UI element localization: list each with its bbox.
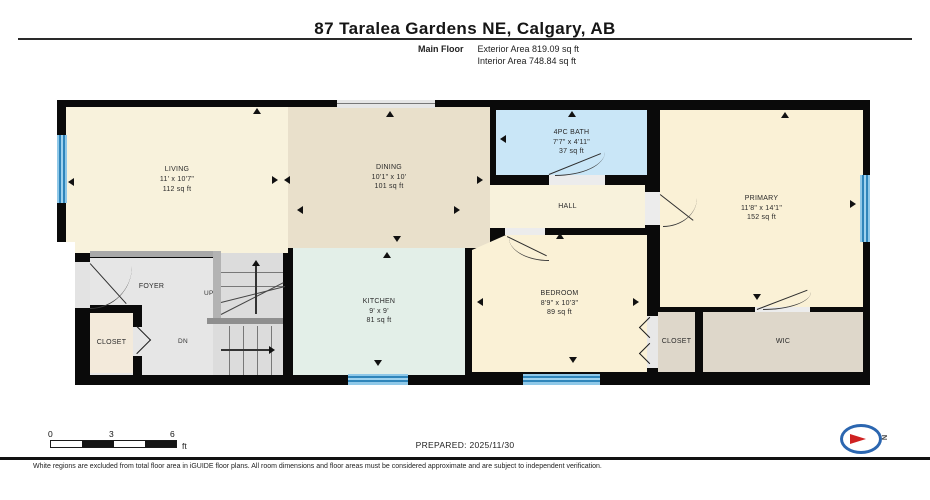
dimension-arrow-icon (633, 298, 639, 306)
stair-landing-divider (207, 318, 283, 324)
window (523, 374, 600, 385)
dimension-arrow-icon (253, 108, 261, 114)
stair-tread (221, 272, 283, 273)
stair-tread (229, 326, 230, 375)
wall-segment (133, 356, 142, 375)
page-title: 87 Taralea Gardens NE, Calgary, AB (0, 19, 930, 39)
title-divider (18, 38, 912, 40)
dimension-arrow-icon (500, 135, 506, 143)
dimension-arrow-icon (383, 252, 391, 258)
room-hall: HALL (490, 185, 645, 228)
door-opening (75, 262, 90, 308)
room-living: LIVING 11' x 10'7" 112 sq ft (66, 107, 288, 253)
patio-door (337, 100, 435, 108)
dimension-arrow-icon (781, 112, 789, 118)
dimension-arrow-icon (284, 176, 290, 184)
room-foyer-label: FOYER (139, 282, 164, 292)
dimension-arrow-icon (393, 236, 401, 242)
floor-label: Main Floor (418, 43, 464, 67)
stairs-up-arrow (255, 266, 257, 314)
scale-ticks: 0 3 6 (50, 429, 200, 439)
scale-tick: 6 (170, 429, 175, 439)
prepared-date: PREPARED: 2025/11/30 (0, 440, 930, 450)
stairs-up-arrowhead-icon (252, 260, 260, 266)
room-wic: WIC (703, 312, 863, 372)
room-bedroom-closet-label: CLOSET (662, 337, 692, 347)
wall-segment (133, 305, 142, 327)
dimension-arrow-icon (386, 111, 394, 117)
disclaimer-text: White regions are excluded from total fl… (33, 463, 913, 470)
stairs-down-label: DN (178, 338, 188, 345)
dimension-arrow-icon (454, 206, 460, 214)
compass-icon: N (840, 424, 886, 454)
room-dining: DINING 10'1" x 10' 101 sq ft (288, 107, 490, 248)
room-living-label: LIVING 11' x 10'7" 112 sq ft (160, 165, 194, 194)
dimension-arrow-icon (556, 233, 564, 239)
dimension-arrow-icon (850, 200, 856, 208)
door-opening (505, 228, 545, 235)
door-opening (549, 175, 605, 185)
north-arrow-icon (850, 434, 866, 444)
dimension-arrow-icon (568, 111, 576, 117)
room-kitchen: KITCHEN 9' x 9' 81 sq ft (293, 248, 465, 375)
area-summary: Exterior Area 819.09 sq ft Interior Area… (478, 43, 580, 67)
dimension-arrow-icon (68, 178, 74, 186)
floorplan-page: 87 Taralea Gardens NE, Calgary, AB Main … (0, 0, 930, 500)
room-bedroom-closet: CLOSET (658, 312, 695, 372)
room-dining-label: DINING 10'1" x 10' 101 sq ft (372, 163, 407, 192)
window (57, 135, 67, 203)
room-hall-label: HALL (558, 202, 577, 212)
dimension-arrow-icon (569, 357, 577, 363)
compass-north-label: N (880, 435, 889, 440)
stairs-down-arrowhead-icon (269, 346, 275, 354)
dimension-arrow-icon (297, 206, 303, 214)
room-bedroom: BEDROOM 8'9" x 10'3" 89 sq ft (472, 235, 647, 372)
exterior-area: Exterior Area 819.09 sq ft (478, 43, 580, 55)
room-wic-label: WIC (776, 337, 790, 347)
stair-tread (257, 326, 258, 375)
stair-tread (243, 326, 244, 375)
stairs-down-arrow (221, 349, 271, 351)
dimension-arrow-icon (753, 294, 761, 300)
dimension-arrow-icon (477, 176, 483, 184)
window (860, 175, 870, 242)
stairs-up-label: UP (204, 290, 214, 297)
scale-tick: 3 (109, 429, 114, 439)
stair-post (213, 251, 221, 321)
footer-divider (0, 457, 930, 460)
dimension-arrow-icon (477, 298, 483, 306)
room-bedroom-label: BEDROOM 8'9" x 10'3" 89 sq ft (541, 289, 579, 318)
exterior-cutout (57, 242, 75, 385)
dimension-arrow-icon (272, 176, 278, 184)
door-opening (645, 192, 660, 225)
room-kitchen-label: KITCHEN 9' x 9' 81 sq ft (363, 297, 395, 326)
foyer-railing (90, 251, 218, 257)
dimension-arrow-icon (374, 360, 382, 366)
interior-area: Interior Area 748.84 sq ft (478, 55, 580, 67)
room-primary-label: PRIMARY 11'8" x 14'1" 152 sq ft (741, 194, 782, 223)
floor-summary: Main Floor Exterior Area 819.09 sq ft In… (418, 43, 579, 67)
floor-plan: LIVING 11' x 10'7" 112 sq ft DINING 10'1… (57, 100, 870, 385)
scale-tick: 0 (48, 429, 53, 439)
window (348, 374, 408, 385)
